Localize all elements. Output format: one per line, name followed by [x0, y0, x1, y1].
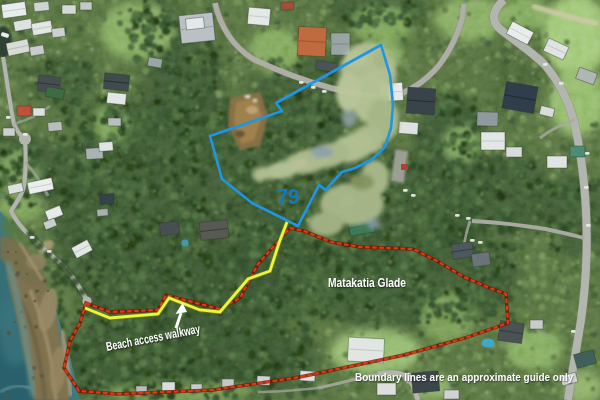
- svg-text:Matakatia Glade: Matakatia Glade: [328, 275, 406, 291]
- svg-text:Boundary lines are an approxim: Boundary lines are an approximate guide …: [355, 370, 573, 383]
- svg-text:79: 79: [277, 184, 299, 208]
